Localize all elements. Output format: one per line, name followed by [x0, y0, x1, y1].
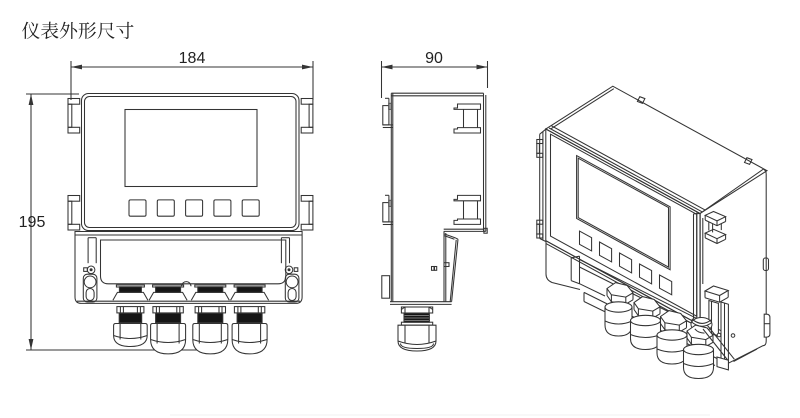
svg-text:90: 90 [425, 50, 443, 67]
svg-text:184: 184 [179, 50, 206, 67]
svg-text:195: 195 [19, 214, 46, 231]
